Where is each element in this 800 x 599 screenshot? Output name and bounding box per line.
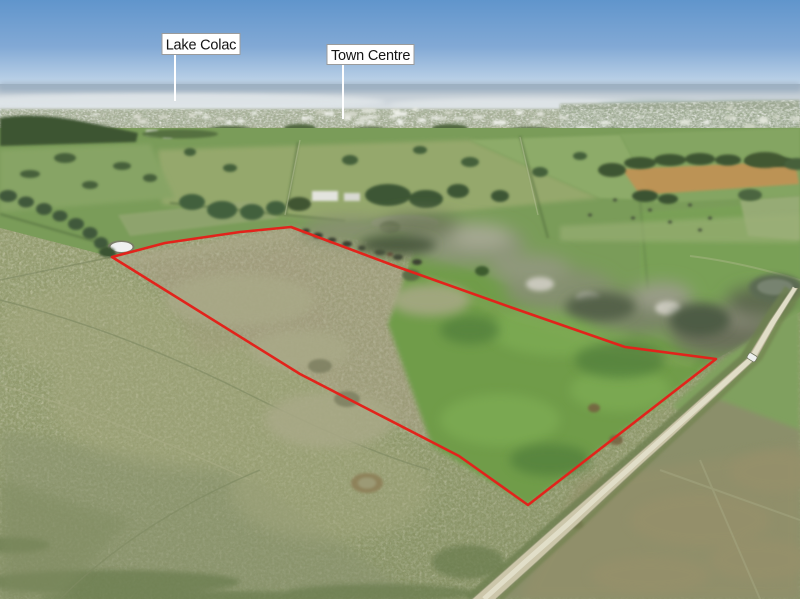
svg-text:Lake Colac: Lake Colac: [166, 37, 237, 53]
svg-text:Town Centre: Town Centre: [331, 48, 410, 64]
